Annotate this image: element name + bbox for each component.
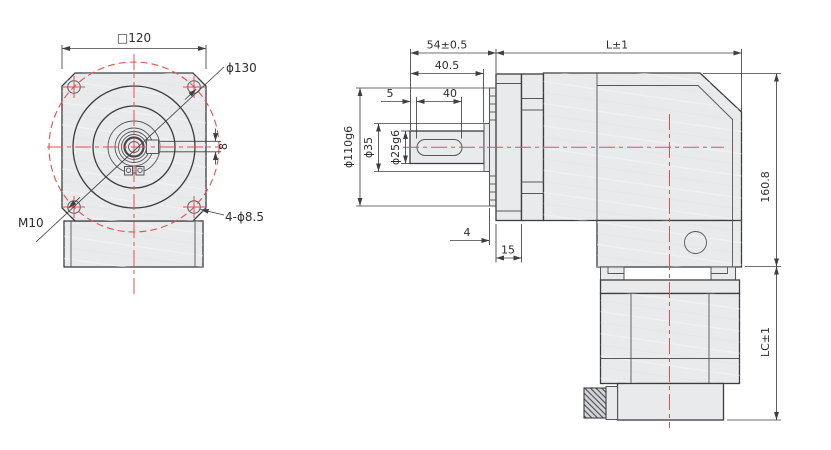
dim-160-8-label: 160.8 bbox=[759, 171, 772, 203]
side-connector bbox=[584, 387, 618, 420]
dim-5-label: 5 bbox=[387, 87, 394, 100]
front-bolt-circle-label: ϕ130 bbox=[226, 61, 257, 75]
dim-dia25-label: ϕ25g6 bbox=[389, 130, 402, 165]
front-view: □120 8 ϕ130 M10 4-ϕ8.5 bbox=[18, 31, 264, 296]
side-motor-endcap bbox=[618, 384, 724, 421]
dim-40-5-label: 40.5 bbox=[435, 59, 460, 72]
side-dim-40: 40 bbox=[417, 87, 462, 102]
side-dim-40-5: 40.5 bbox=[411, 59, 484, 74]
side-dim-54: 54±0.5 bbox=[411, 39, 497, 54]
dim-15-label: 15 bbox=[501, 244, 515, 257]
side-dim-160-8: 160.8 bbox=[759, 74, 777, 267]
front-square-label: □120 bbox=[117, 31, 151, 45]
side-dim-4: 4 bbox=[450, 226, 490, 241]
side-view: 54±0.5 L±1 40.5 5 40 ϕ110g6 ϕ35 ϕ25g6 bbox=[342, 39, 781, 429]
drawing-canvas: □120 8 ϕ130 M10 4-ϕ8.5 bbox=[0, 0, 831, 450]
dim-dia110-label: ϕ110g6 bbox=[342, 126, 355, 168]
dim-dia35-label: ϕ35 bbox=[362, 137, 375, 158]
side-motor-tabs bbox=[601, 267, 736, 280]
dim-40-label: 40 bbox=[443, 87, 457, 100]
side-dim-5: 5 bbox=[381, 87, 411, 102]
dim-L-label: L±1 bbox=[606, 39, 628, 52]
technical-drawing: □120 8 ϕ130 M10 4-ϕ8.5 bbox=[0, 0, 831, 450]
front-holes-label: 4-ϕ8.5 bbox=[225, 210, 264, 224]
front-thread-label: M10 bbox=[18, 216, 44, 230]
side-dim-15: 15 bbox=[496, 244, 522, 259]
front-keyway-width-label: 8 bbox=[217, 143, 230, 150]
side-dim-L: L±1 bbox=[496, 39, 742, 54]
dim-LC-label: LC±1 bbox=[759, 327, 772, 357]
side-dim-dia110: ϕ110g6 bbox=[342, 88, 360, 206]
side-dim-LC: LC±1 bbox=[759, 267, 777, 421]
dim-4-label: 4 bbox=[464, 226, 471, 239]
side-dim-dia35: ϕ35 bbox=[362, 124, 379, 172]
side-output-shaft bbox=[410, 124, 490, 172]
dim-54-label: 54±0.5 bbox=[427, 39, 468, 52]
